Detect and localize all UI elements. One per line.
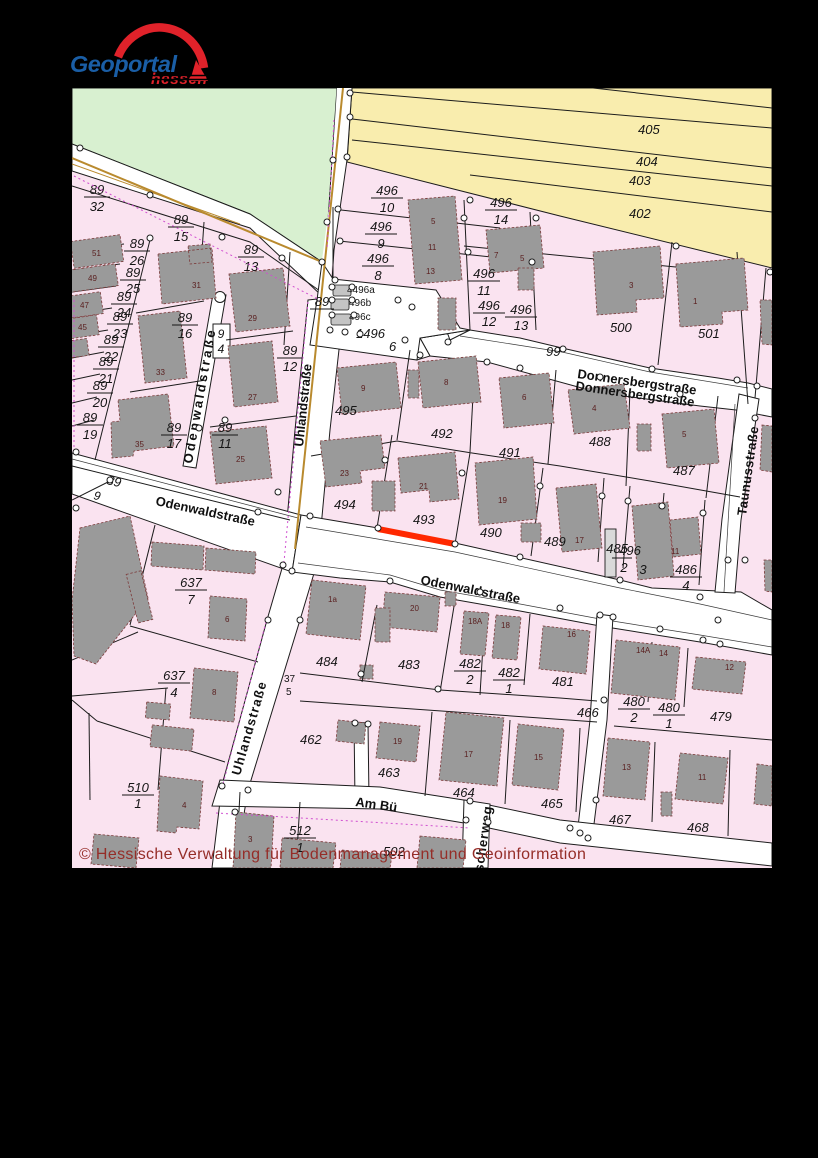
svg-text:9: 9 [377, 236, 384, 251]
svg-text:51: 51 [92, 249, 101, 258]
svg-text:89: 89 [126, 265, 140, 280]
svg-text:496: 496 [370, 219, 392, 234]
svg-text:501: 501 [698, 326, 720, 341]
svg-text:480: 480 [658, 700, 680, 715]
svg-text:89: 89 [130, 236, 144, 251]
svg-text:19: 19 [83, 427, 97, 442]
svg-text:5: 5 [431, 217, 436, 226]
svg-text:491: 491 [499, 445, 521, 460]
svg-text:20: 20 [92, 395, 108, 410]
svg-text:89: 89 [113, 309, 127, 324]
svg-text:464: 464 [453, 785, 475, 800]
svg-text:3: 3 [639, 562, 647, 577]
svg-text:482: 482 [498, 665, 520, 680]
svg-text:49: 49 [88, 274, 97, 283]
svg-text:1: 1 [505, 681, 512, 696]
svg-text:486: 486 [675, 562, 697, 577]
svg-text:481: 481 [552, 674, 574, 689]
svg-text:16: 16 [178, 326, 193, 341]
svg-text:18: 18 [501, 621, 510, 630]
svg-text:5: 5 [520, 254, 525, 263]
svg-text:496: 496 [619, 543, 641, 558]
svg-text:89: 89 [104, 332, 118, 347]
svg-text:1: 1 [134, 796, 141, 811]
svg-text:5: 5 [286, 687, 292, 698]
svg-text:89: 89 [93, 378, 107, 393]
svg-text:18A: 18A [468, 617, 483, 626]
svg-text:11: 11 [218, 436, 232, 451]
svg-text:637: 637 [163, 668, 185, 683]
svg-text:12: 12 [725, 663, 734, 672]
svg-text:3: 3 [629, 281, 634, 290]
svg-text:89: 89 [83, 410, 97, 425]
svg-text:89: 89 [315, 294, 329, 309]
svg-text:89: 89 [167, 420, 181, 435]
svg-text:27: 27 [248, 393, 257, 402]
svg-text:488: 488 [589, 434, 611, 449]
svg-text:6: 6 [389, 339, 397, 354]
svg-text:402: 402 [629, 206, 651, 221]
svg-text:11: 11 [428, 243, 437, 252]
svg-text:19: 19 [498, 496, 507, 505]
svg-text:99: 99 [546, 344, 560, 359]
svg-text:14A: 14A [636, 646, 651, 655]
svg-text:19: 19 [393, 737, 402, 746]
svg-text:487: 487 [673, 463, 695, 478]
svg-text:494: 494 [334, 497, 356, 512]
svg-text:14: 14 [494, 212, 508, 227]
svg-text:404: 404 [636, 154, 658, 169]
svg-text:496: 496 [478, 298, 500, 313]
svg-text:2: 2 [619, 560, 628, 575]
svg-text:89: 89 [117, 289, 131, 304]
svg-text:11: 11 [671, 547, 680, 556]
svg-text:17: 17 [464, 750, 473, 759]
svg-text:14: 14 [659, 649, 668, 658]
svg-text:89: 89 [90, 182, 104, 197]
svg-text:6: 6 [522, 393, 527, 402]
svg-text:403: 403 [629, 173, 651, 188]
svg-text:512: 512 [289, 823, 311, 838]
svg-text:492: 492 [431, 426, 453, 441]
svg-text:6: 6 [225, 615, 230, 624]
svg-text:11: 11 [698, 773, 707, 782]
svg-text:20: 20 [410, 604, 419, 613]
svg-text:8: 8 [444, 378, 449, 387]
svg-text:495: 495 [335, 403, 357, 418]
svg-text:4: 4 [682, 578, 689, 593]
svg-text:480: 480 [623, 694, 645, 709]
svg-text:45: 45 [78, 323, 87, 332]
svg-text:496: 496 [473, 266, 495, 281]
svg-text:2: 2 [465, 672, 474, 687]
svg-text:25: 25 [236, 455, 245, 464]
svg-text:1: 1 [665, 716, 672, 731]
svg-text:12: 12 [482, 314, 497, 329]
svg-text:21: 21 [419, 482, 428, 491]
svg-text:8: 8 [374, 268, 382, 283]
svg-text:483: 483 [398, 657, 420, 672]
svg-text:13: 13 [426, 267, 435, 276]
svg-text:4: 4 [182, 801, 187, 810]
svg-text:3: 3 [248, 835, 253, 844]
svg-text:510: 510 [127, 780, 149, 795]
svg-text:89: 89 [99, 354, 113, 369]
svg-text:7: 7 [187, 592, 195, 607]
svg-text:13: 13 [622, 763, 631, 772]
svg-text:13: 13 [514, 318, 529, 333]
svg-text:© Hessische Verwaltung für Bod: © Hessische Verwaltung für Bodenmanageme… [79, 846, 586, 863]
svg-text:35: 35 [135, 440, 144, 449]
svg-text:33: 33 [156, 368, 165, 377]
svg-text:7: 7 [494, 251, 499, 260]
svg-text:467: 467 [609, 812, 631, 827]
svg-text:496: 496 [510, 302, 532, 317]
svg-text:12: 12 [283, 359, 298, 374]
svg-text:17: 17 [167, 436, 182, 451]
svg-text:462: 462 [300, 732, 322, 747]
svg-text:47: 47 [80, 301, 89, 310]
svg-text:484: 484 [316, 654, 338, 669]
svg-text:13: 13 [244, 259, 259, 274]
svg-text:89: 89 [283, 343, 297, 358]
svg-text:37: 37 [284, 674, 296, 685]
svg-text:15: 15 [534, 753, 543, 762]
svg-text:479: 479 [710, 709, 732, 724]
svg-text:405: 405 [638, 122, 660, 137]
svg-text:637: 637 [180, 575, 202, 590]
svg-text:29: 29 [248, 314, 257, 323]
svg-text:496: 496 [367, 251, 389, 266]
svg-text:31: 31 [192, 281, 201, 290]
svg-text:2: 2 [629, 710, 638, 725]
svg-text:4: 4 [218, 342, 225, 356]
svg-text:463: 463 [378, 765, 400, 780]
svg-text:489: 489 [544, 534, 566, 549]
svg-text:89: 89 [244, 242, 258, 257]
svg-text:482: 482 [459, 656, 481, 671]
svg-text:1a: 1a [328, 595, 337, 604]
svg-text:493: 493 [413, 512, 435, 527]
svg-text:89: 89 [178, 310, 192, 325]
svg-text:89: 89 [174, 212, 188, 227]
svg-text:496: 496 [376, 183, 398, 198]
svg-text:17: 17 [575, 536, 584, 545]
svg-text:10: 10 [380, 200, 395, 215]
svg-text:1: 1 [693, 297, 698, 306]
svg-text:9: 9 [361, 384, 366, 393]
svg-text:465: 465 [541, 796, 563, 811]
svg-text:16: 16 [567, 630, 576, 639]
svg-text:4: 4 [170, 685, 177, 700]
svg-text:5: 5 [682, 430, 687, 439]
svg-text:468: 468 [687, 820, 709, 835]
svg-text:11: 11 [477, 283, 491, 298]
svg-text:490: 490 [480, 525, 502, 540]
svg-text:4: 4 [592, 404, 597, 413]
svg-text:466: 466 [577, 705, 599, 720]
svg-text:23: 23 [340, 469, 349, 478]
svg-text:15: 15 [174, 229, 189, 244]
svg-text:8: 8 [212, 688, 217, 697]
svg-text:500: 500 [610, 320, 632, 335]
svg-text:496: 496 [490, 195, 512, 210]
svg-text:32: 32 [90, 199, 105, 214]
